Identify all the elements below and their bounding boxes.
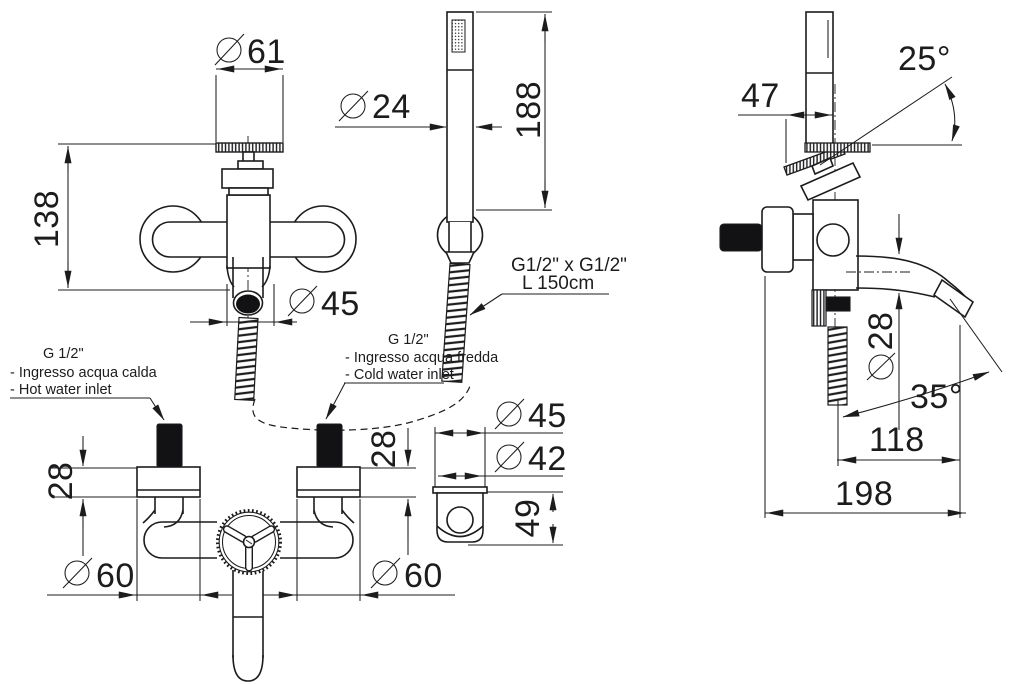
dim-value: 60 [404, 557, 443, 595]
dim-value: 45 [528, 397, 567, 435]
side-hose [828, 327, 847, 405]
dim-value: 49 [509, 499, 547, 538]
hot-label-it: - Ingresso acqua calda [10, 365, 158, 381]
wall-flange-side [762, 207, 793, 272]
holder-hole [447, 507, 473, 533]
cold-thread-label: G 1/2" [388, 332, 429, 348]
hose-length-label: L 150cm [522, 273, 594, 294]
dim-value: 24 [372, 88, 411, 126]
knurled-handle-horizontal [805, 143, 870, 152]
holder-detail-view [433, 487, 487, 542]
hose-nut [446, 252, 474, 263]
dim-value: 35° [910, 378, 963, 416]
cold-label-it: - Ingresso acqua fredda [345, 350, 499, 366]
right-arm [265, 222, 345, 257]
dim-value: 61 [247, 33, 286, 71]
dim-value: 45 [321, 285, 360, 323]
left-escutcheon [137, 467, 200, 497]
dim-value: 28 [365, 430, 403, 469]
left-arm [153, 222, 233, 257]
hot-water-inlet-pipe [157, 424, 182, 467]
dim-value: 47 [741, 77, 780, 115]
spout-outlet [236, 295, 260, 314]
cold-label-en: - Cold water inlet [345, 367, 454, 383]
knurled-handle-wheel [216, 143, 283, 152]
dim-value: 60 [96, 557, 135, 595]
holder-rim [433, 487, 487, 493]
valve-cap [222, 169, 273, 188]
dim-value: 188 [510, 81, 548, 139]
hand-shower-side [806, 12, 833, 145]
wall-inlet-side [720, 224, 762, 251]
dim-value: 118 [869, 421, 925, 459]
dim-value: 42 [528, 440, 567, 478]
front-hose [235, 318, 258, 401]
technical-drawing-page: 61 138 45 24 188 G1/2" x G1/2" L 150c [0, 0, 1024, 684]
handle-wheel-bottom [217, 510, 281, 574]
cold-water-inlet-pipe [317, 424, 342, 467]
dim-value: 28 [42, 462, 80, 501]
spray-face [452, 20, 465, 52]
dim-value: 198 [835, 475, 893, 513]
dim-value: 28 [862, 312, 900, 351]
diverter-knob [817, 224, 849, 256]
hose-nut-side [826, 297, 850, 311]
faucet-technical-drawing: 61 138 45 24 188 G1/2" x G1/2" L 150c [0, 0, 1024, 684]
hot-label-en: - Hot water inlet [10, 382, 112, 398]
right-escutcheon [297, 467, 360, 497]
dim-value: 25° [898, 40, 951, 78]
hot-thread-label: G 1/2" [43, 346, 84, 362]
dim-value: 138 [28, 190, 66, 248]
